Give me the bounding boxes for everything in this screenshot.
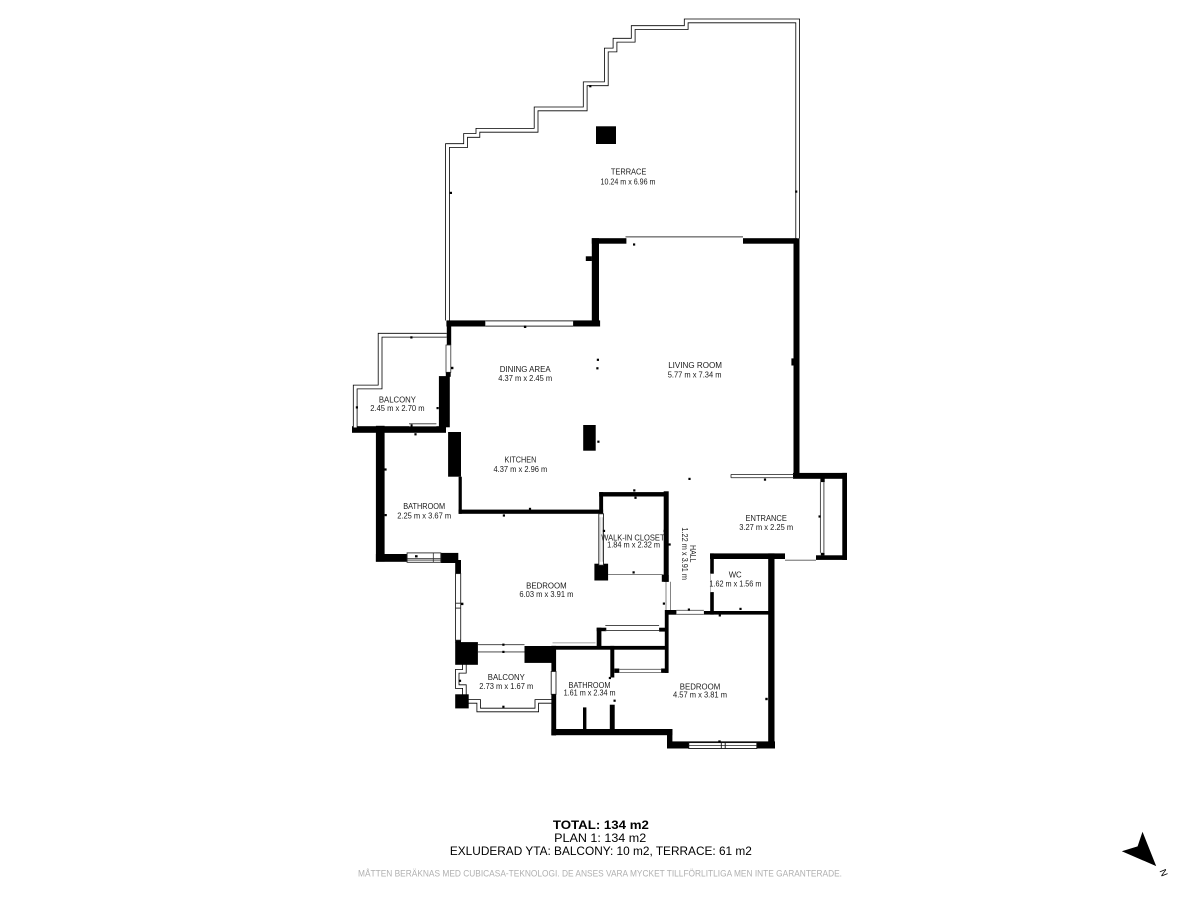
svg-text:1.84 m x 2.32 m: 1.84 m x 2.32 m [607, 540, 660, 550]
svg-text:1.22 m x 3.91 m: 1.22 m x 3.91 m [680, 527, 690, 580]
svg-text:4.37 m x 2.96 m: 4.37 m x 2.96 m [494, 464, 548, 474]
svg-text:2.25 m x 3.67 m: 2.25 m x 3.67 m [397, 510, 451, 520]
svg-text:MÅTTEN BERÄKNAS MED CUBICASA-T: MÅTTEN BERÄKNAS MED CUBICASA-TEKNOLOGI. … [358, 869, 842, 880]
svg-text:1.61 m x 2.34 m: 1.61 m x 2.34 m [564, 688, 616, 698]
svg-text:KITCHEN: KITCHEN [505, 455, 537, 465]
svg-text:2.45 m x 2.70 m: 2.45 m x 2.70 m [370, 403, 424, 413]
svg-text:10.24 m x 6.96 m: 10.24 m x 6.96 m [601, 176, 656, 186]
svg-text:6.03 m x 3.91 m: 6.03 m x 3.91 m [519, 589, 573, 599]
svg-text:4.57 m x 3.81 m: 4.57 m x 3.81 m [673, 690, 727, 700]
svg-text:TERRACE: TERRACE [611, 166, 647, 176]
svg-text:3.27 m x 2.25 m: 3.27 m x 2.25 m [739, 522, 793, 532]
svg-text:PLAN 1: 134 m2: PLAN 1: 134 m2 [554, 831, 646, 845]
svg-text:2.73 m x 1.67 m: 2.73 m x 1.67 m [479, 681, 533, 691]
svg-text:EXLUDERAD YTA: BALCONY: 10 m2,: EXLUDERAD YTA: BALCONY: 10 m2, TERRACE: … [450, 844, 752, 858]
svg-text:1.62 m x 1.56 m: 1.62 m x 1.56 m [709, 579, 761, 589]
svg-text:4.37 m x 2.45 m: 4.37 m x 2.45 m [498, 373, 552, 383]
svg-text:5.77 m x 7.34 m: 5.77 m x 7.34 m [668, 370, 722, 380]
